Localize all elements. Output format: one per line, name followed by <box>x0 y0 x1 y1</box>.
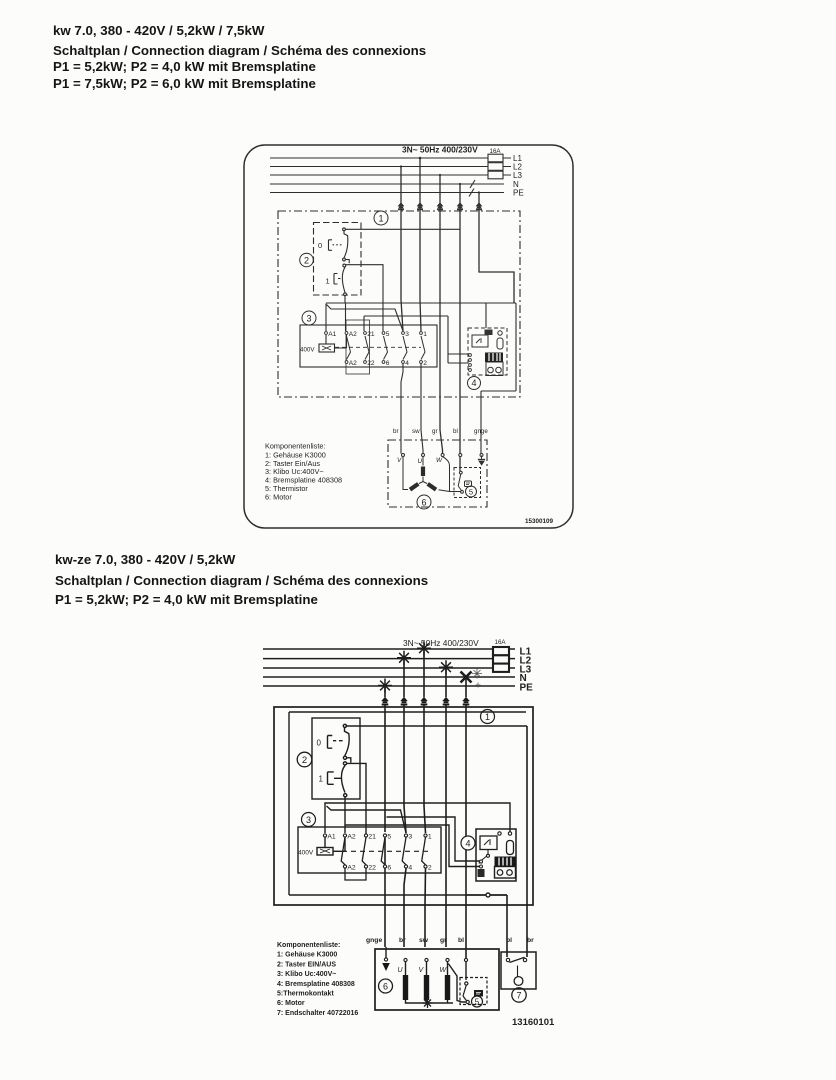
svg-text:7: 7 <box>516 991 521 1001</box>
svg-text:sw: sw <box>412 428 420 435</box>
svg-text:1: 1 <box>485 712 490 722</box>
svg-text:Komponentenliste:: Komponentenliste: <box>265 442 325 451</box>
svg-text:gr: gr <box>432 428 438 435</box>
svg-text:1: 1 <box>378 213 383 223</box>
svg-text:U: U <box>418 458 423 465</box>
svg-text:U: U <box>398 967 404 974</box>
svg-text:PE: PE <box>513 189 524 198</box>
svg-text:4: 4 <box>471 378 476 388</box>
svg-text:bl: bl <box>453 428 458 435</box>
svg-text:A2: A2 <box>347 834 356 841</box>
svg-text:400V: 400V <box>298 850 314 857</box>
svg-text:gnge: gnge <box>474 428 488 435</box>
svg-text:5: 5 <box>386 331 390 338</box>
svg-text:Komponentenliste:: Komponentenliste: <box>277 942 340 949</box>
svg-text:6: 6 <box>383 982 388 992</box>
svg-text:4: Bremsplatine 408308: 4: Bremsplatine 408308 <box>277 981 355 988</box>
svg-text:6: 6 <box>386 360 390 367</box>
svg-text:V: V <box>397 457 402 464</box>
svg-text:4: 4 <box>408 865 412 872</box>
svg-text:3: 3 <box>408 834 412 841</box>
svg-text:3: 3 <box>306 815 311 825</box>
svg-text:A1: A1 <box>327 834 336 841</box>
svg-text:6: Motor: 6: Motor <box>265 492 292 501</box>
svg-text:V: V <box>419 967 425 974</box>
svg-text:A2: A2 <box>347 865 356 872</box>
svg-text:2: 2 <box>428 865 432 872</box>
svg-text:A2: A2 <box>349 331 357 338</box>
svg-text:2: 2 <box>302 755 307 766</box>
svg-text:A2: A2 <box>349 360 357 367</box>
svg-text:400V: 400V <box>300 347 315 354</box>
svg-text:6: 6 <box>387 865 391 872</box>
svg-text:bl: bl <box>506 937 512 944</box>
svg-text:br: br <box>527 937 534 944</box>
svg-text:sw: sw <box>419 937 429 944</box>
svg-text:1: 1 <box>428 834 432 841</box>
svg-text:1: 1 <box>326 277 330 286</box>
svg-text:21: 21 <box>367 331 375 338</box>
svg-text:br: br <box>399 937 406 944</box>
svg-text:2: Taster EIN/AUS: 2: Taster EIN/AUS <box>277 961 336 968</box>
svg-text:br: br <box>393 428 399 435</box>
svg-text:6: 6 <box>421 497 426 507</box>
svg-text:1: 1 <box>319 775 324 784</box>
svg-text:PE: PE <box>520 683 534 694</box>
svg-text:4: 4 <box>465 839 470 849</box>
svg-text:16A: 16A <box>495 639 507 646</box>
svg-text:A1: A1 <box>328 331 336 338</box>
svg-text:2: 2 <box>304 255 309 265</box>
svg-text:bl: bl <box>458 937 464 944</box>
svg-text:15300109: 15300109 <box>525 518 554 525</box>
svg-text:1: 1 <box>423 331 427 338</box>
svg-text:1: Gehäuse K3000: 1: Gehäuse K3000 <box>277 952 337 959</box>
svg-text:3N~ 50Hz 400/230V: 3N~ 50Hz 400/230V <box>402 145 478 155</box>
svg-text:gr: gr <box>440 937 447 944</box>
svg-text:3: 3 <box>405 331 409 338</box>
svg-text:5: 5 <box>475 998 480 1007</box>
svg-text:16A: 16A <box>490 148 502 155</box>
svg-text:5:Thermokontakt: 5:Thermokontakt <box>277 991 334 998</box>
svg-text:W: W <box>440 967 448 974</box>
svg-text:5: 5 <box>469 488 473 497</box>
svg-text:4: 4 <box>405 360 409 367</box>
svg-text:22: 22 <box>368 865 376 872</box>
svg-text:L3: L3 <box>513 171 522 180</box>
svg-text:5: 5 <box>387 834 391 841</box>
svg-text:0: 0 <box>317 739 322 748</box>
svg-text:W: W <box>436 457 443 464</box>
svg-text:3: 3 <box>306 313 311 323</box>
svg-text:6: Motor: 6: Motor <box>277 1000 305 1007</box>
svg-text:13160101: 13160101 <box>512 1017 555 1028</box>
svg-text:21: 21 <box>368 834 376 841</box>
svg-text:2: 2 <box>423 360 427 367</box>
svg-text:3: Klibo Uc:400V~: 3: Klibo Uc:400V~ <box>277 971 336 978</box>
svg-text:3N~ 50Hz 400/230V: 3N~ 50Hz 400/230V <box>403 638 479 648</box>
svg-text:gnge: gnge <box>366 937 382 944</box>
svg-text:7: Endschalter 40722016: 7: Endschalter 40722016 <box>277 1010 358 1017</box>
svg-text:22: 22 <box>367 360 375 367</box>
svg-text:0: 0 <box>318 241 322 250</box>
